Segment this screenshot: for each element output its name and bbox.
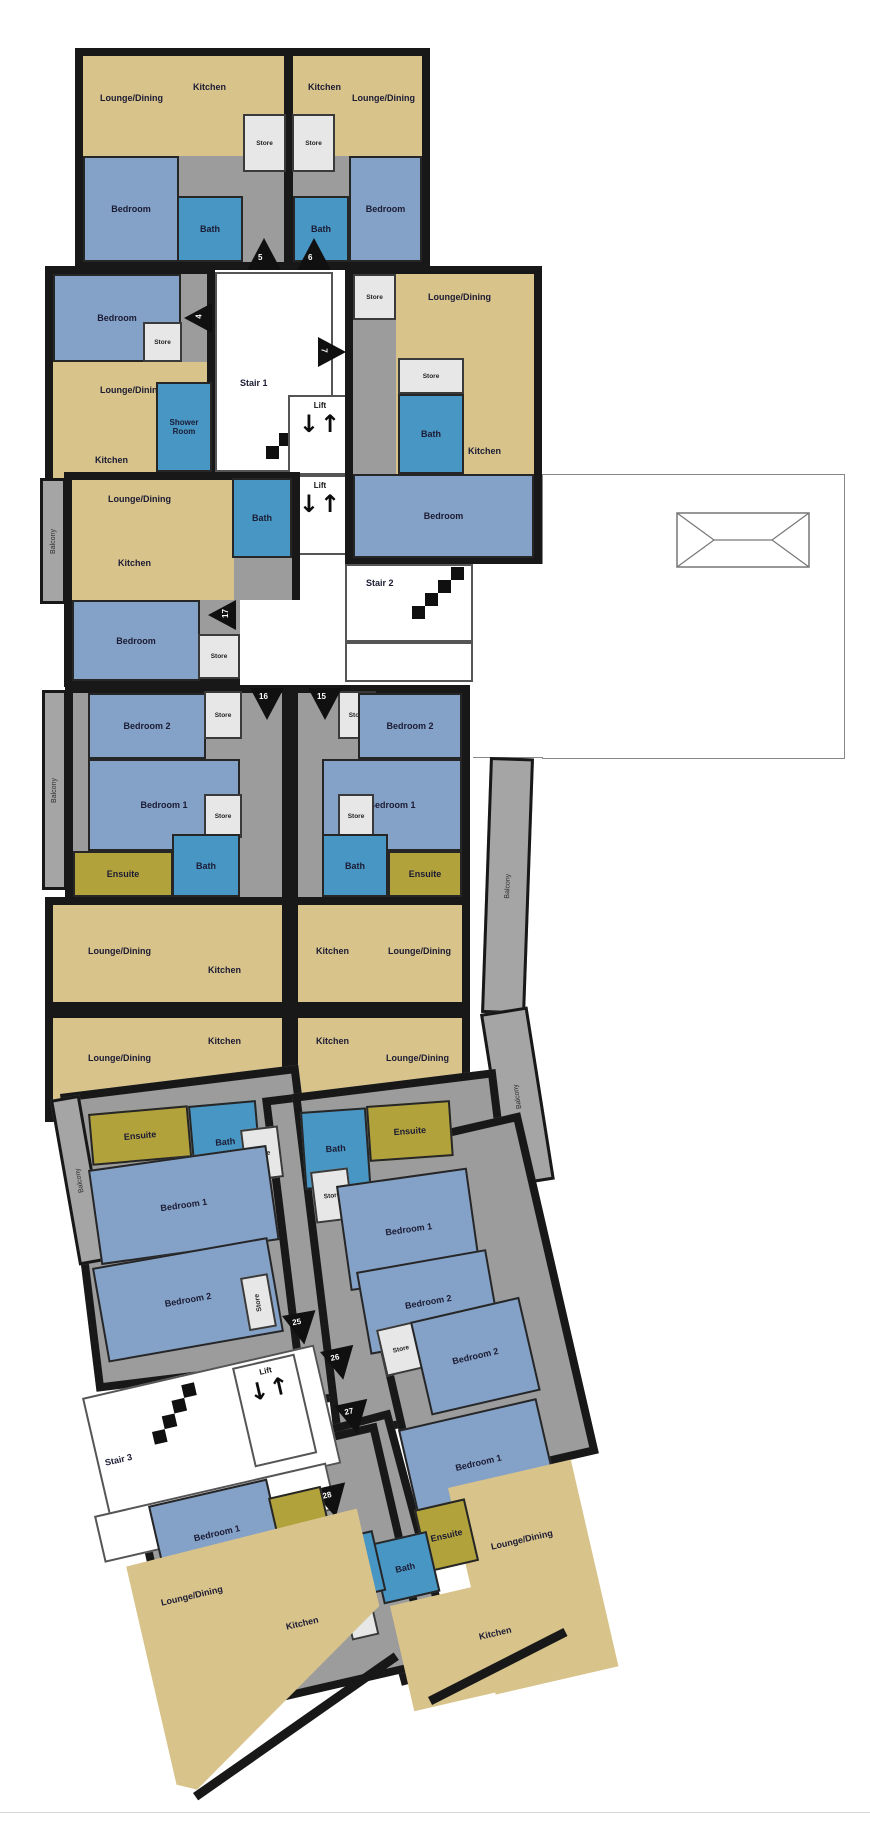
flat16-bedroom2: Bedroom 2	[88, 693, 206, 759]
flat26-kitchen-label: Kitchen	[316, 1036, 349, 1046]
flat15-lounge-label: Lounge/Dining	[388, 946, 451, 956]
floor-plan: Lounge/Dining Kitchen Kitchen Lounge/Din…	[0, 0, 870, 1821]
flat5-lounge-label: Lounge/Dining	[100, 93, 163, 103]
flat17-bath: Bath	[232, 478, 292, 558]
flat26-ensuite: Ensuite	[366, 1100, 454, 1162]
flat7-bath: Bath	[398, 394, 464, 474]
flat26-lounge-label: Lounge/Dining	[386, 1053, 449, 1063]
annex-outline-ext	[473, 564, 543, 758]
entrance-arrow-5: 5	[247, 238, 281, 270]
flat4-shower-room: Shower Room	[156, 382, 212, 472]
flat17-store: Store	[198, 634, 240, 679]
flat15-ensuite: Ensuite	[388, 851, 462, 897]
lift-arrows-icon: ↓↑	[299, 412, 341, 436]
flat17-lounge-label: Lounge/Dining	[108, 494, 171, 504]
page-bottom-rule	[0, 1812, 870, 1813]
flat16-ensuite: Ensuite	[73, 851, 173, 897]
lift-arrows-icon: ↓↑	[299, 492, 341, 516]
flat4-kitchen-label: Kitchen	[95, 455, 128, 465]
flat25-kitchen-label: Kitchen	[208, 1036, 241, 1046]
flat16-store-b: Store	[204, 794, 242, 838]
flat16-lounge-label: Lounge/Dining	[88, 946, 151, 956]
lift-arrows-icon: ↓↑	[246, 1373, 293, 1406]
flat17-bedroom: Bedroom	[72, 600, 200, 681]
flat26-balcony-upper: Balcony	[481, 757, 534, 1014]
roof-outline-icon	[676, 512, 810, 568]
flat5-kitchen-label: Kitchen	[193, 82, 226, 92]
flat16-balcony: Balcony	[42, 690, 67, 890]
flat5-bedroom: Bedroom	[83, 156, 179, 262]
flat17-kitchen-label: Kitchen	[118, 558, 151, 568]
entrance-arrow-4: 4	[184, 303, 212, 333]
flat6-store: Store	[292, 114, 335, 172]
stair2-landing	[345, 642, 473, 682]
flat16-store-a: Store	[204, 691, 242, 739]
flat16-bath: Bath	[172, 834, 240, 897]
flat25-lounge-label: Lounge/Dining	[88, 1053, 151, 1063]
flat16-kitchen-label: Kitchen	[208, 965, 241, 975]
entrance-arrow-16: 16	[250, 688, 284, 720]
lift-shaft-1: Lift↓↑	[288, 395, 352, 475]
entrance-arrow-7: 7	[318, 337, 346, 367]
flat7-store-a: Store	[353, 274, 396, 320]
flat15-store-b: Store	[338, 794, 374, 838]
flat15-bath: Bath	[322, 834, 388, 897]
flat4-lounge-label: Lounge/Dining	[100, 385, 163, 395]
stair1-label: Stair 1	[240, 378, 268, 388]
flat15-kitchen-label: Kitchen	[316, 946, 349, 956]
flat7-lounge-label: Lounge/Dining	[428, 292, 491, 302]
flat5-bath: Bath	[177, 196, 243, 262]
stair1-hall	[240, 600, 344, 685]
entrance-arrow-17: 17	[208, 600, 236, 630]
flat6-kitchen-label: Kitchen	[308, 82, 341, 92]
flat6-bedroom: Bedroom	[349, 156, 422, 262]
stairs-icon	[266, 446, 279, 459]
flat7-bedroom: Bedroom	[353, 474, 534, 558]
flat7-store-b: Store	[398, 358, 464, 394]
stair2-room	[345, 564, 473, 642]
flat6-lounge-label: Lounge/Dining	[352, 93, 415, 103]
flat15-bedroom2: Bedroom 2	[358, 693, 462, 759]
stair2-label: Stair 2	[366, 578, 394, 588]
flat17-balcony: Balcony	[40, 478, 66, 604]
entrance-arrow-15: 15	[308, 688, 342, 720]
flat4-store: Store	[143, 322, 182, 362]
flat5-store: Store	[243, 114, 286, 172]
entrance-arrow-6: 6	[297, 238, 331, 270]
entrance-arrow-25: 25	[282, 1310, 321, 1347]
flat7-kitchen-label: Kitchen	[468, 446, 501, 456]
stairs-icon	[412, 606, 425, 619]
